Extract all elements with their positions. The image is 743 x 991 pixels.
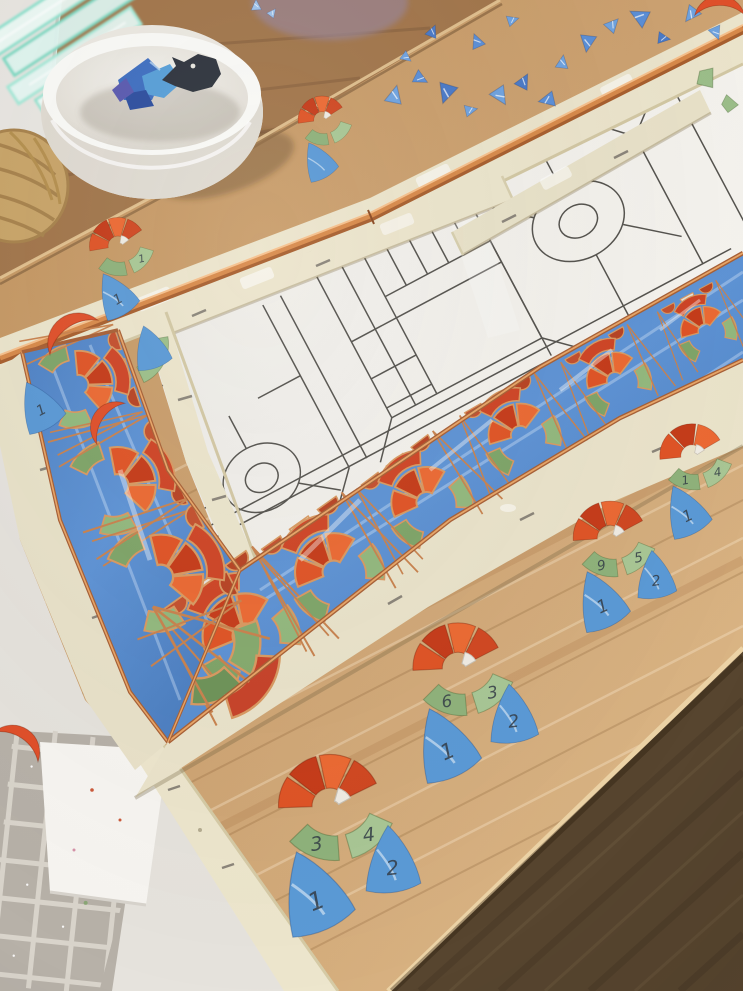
scene-canvas: 11431236125912411 1 [0,0,743,991]
photo-stained-glass-workbench: 11431236125912411 1 [0,0,743,991]
photo-vignette [0,0,743,991]
